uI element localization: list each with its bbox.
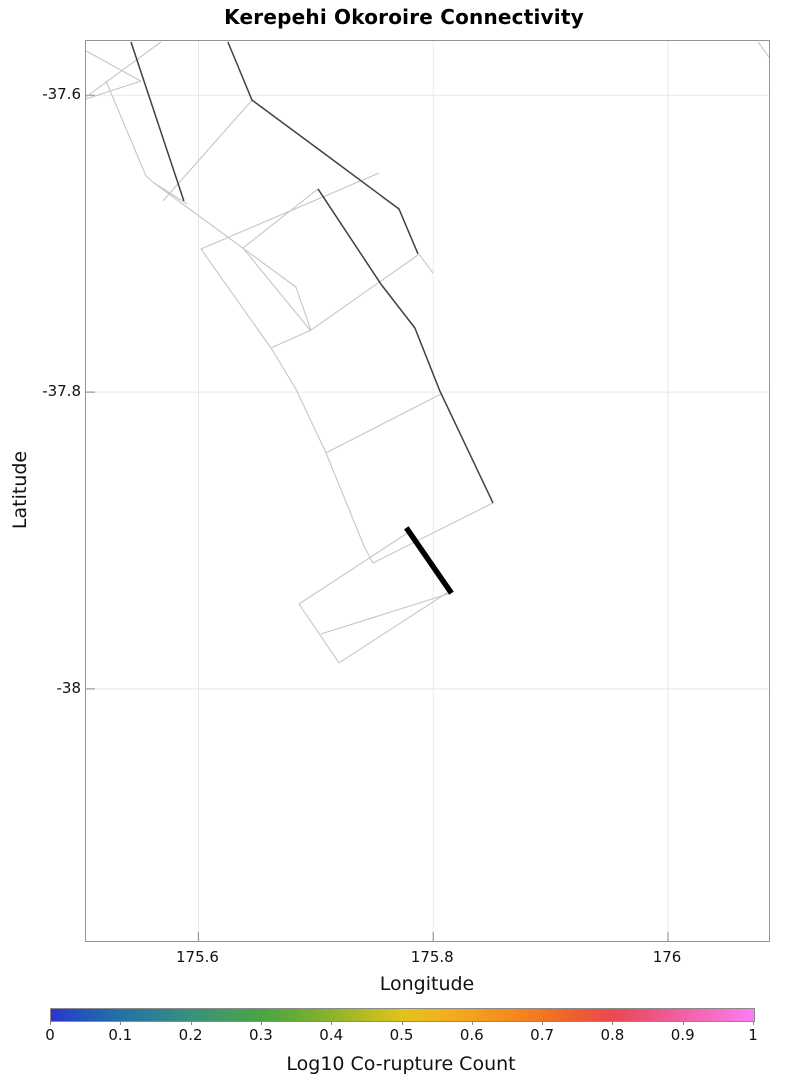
colorbar-label: Log10 Co-rupture Count [286,1053,515,1075]
colorbar-tick-label: 0.6 [460,1026,484,1044]
fault-trace-dark [131,42,184,201]
colorbar-tick-label: 0.4 [319,1026,343,1044]
fault-trace-light [758,42,769,57]
fault-trace-light [106,81,187,204]
fault-trace-light [299,604,339,663]
colorbar-tick-label: 0.3 [249,1026,273,1044]
x-tick-label: 175.8 [411,948,454,966]
colorbar-tick [542,1021,543,1025]
colorbar-gradient [50,1008,755,1022]
fault-trace-light [243,189,318,248]
fault-trace-light [154,183,311,330]
x-tick-label: 176 [653,948,682,966]
page-title: Kerepehi Okoroire Connectivity [20,5,788,29]
colorbar-tick [402,1021,403,1025]
figure-canvas: Kerepehi Okoroire Connectivity Latitude … [0,0,800,1087]
fault-trace-light [419,254,433,273]
colorbar-tick [191,1021,192,1025]
fault-trace-light [311,255,418,330]
colorbar-tick-label: 1 [748,1026,758,1044]
x-axis-label: Longitude [380,973,475,995]
y-tick-label: -37.8 [0,382,81,400]
colorbar-tick [683,1021,684,1025]
colorbar-tick-label: 0.5 [390,1026,414,1044]
fault-trace-dark [318,189,493,503]
colorbar-tick [120,1021,121,1025]
y-tick-label: -38 [0,679,81,697]
colorbar-tick [261,1021,262,1025]
fault-map-svg [86,41,769,941]
fault-trace-light [201,249,373,563]
colorbar-tick-label: 0.2 [179,1026,203,1044]
y-tick-label: -37.6 [0,85,81,103]
fault-trace-light [163,100,252,201]
x-tick-label: 175.6 [176,948,219,966]
fault-trace-light [86,42,161,97]
fault-trace-dark [228,42,418,254]
colorbar-tick-label: 0.8 [600,1026,624,1044]
map-plot-area [85,40,770,942]
colorbar-tick-label: 0 [45,1026,55,1044]
colorbar-tick [753,1021,754,1025]
colorbar-tick [612,1021,613,1025]
colorbar-tick-label: 0.1 [108,1026,132,1044]
fault-trace-light [326,394,441,453]
highlighted-fault-segment [408,530,450,591]
fault-trace-light [271,330,311,348]
colorbar-tick [472,1021,473,1025]
fault-trace-light [243,248,311,331]
fault-trace-light [321,593,451,634]
y-axis-label: Latitude [9,451,31,529]
colorbar-tick [331,1021,332,1025]
colorbar-tick-label: 0.9 [671,1026,695,1044]
fault-trace-light [86,81,141,99]
fault-trace-light [299,532,409,604]
colorbar-tick-label: 0.7 [530,1026,554,1044]
colorbar-tick [50,1021,51,1025]
